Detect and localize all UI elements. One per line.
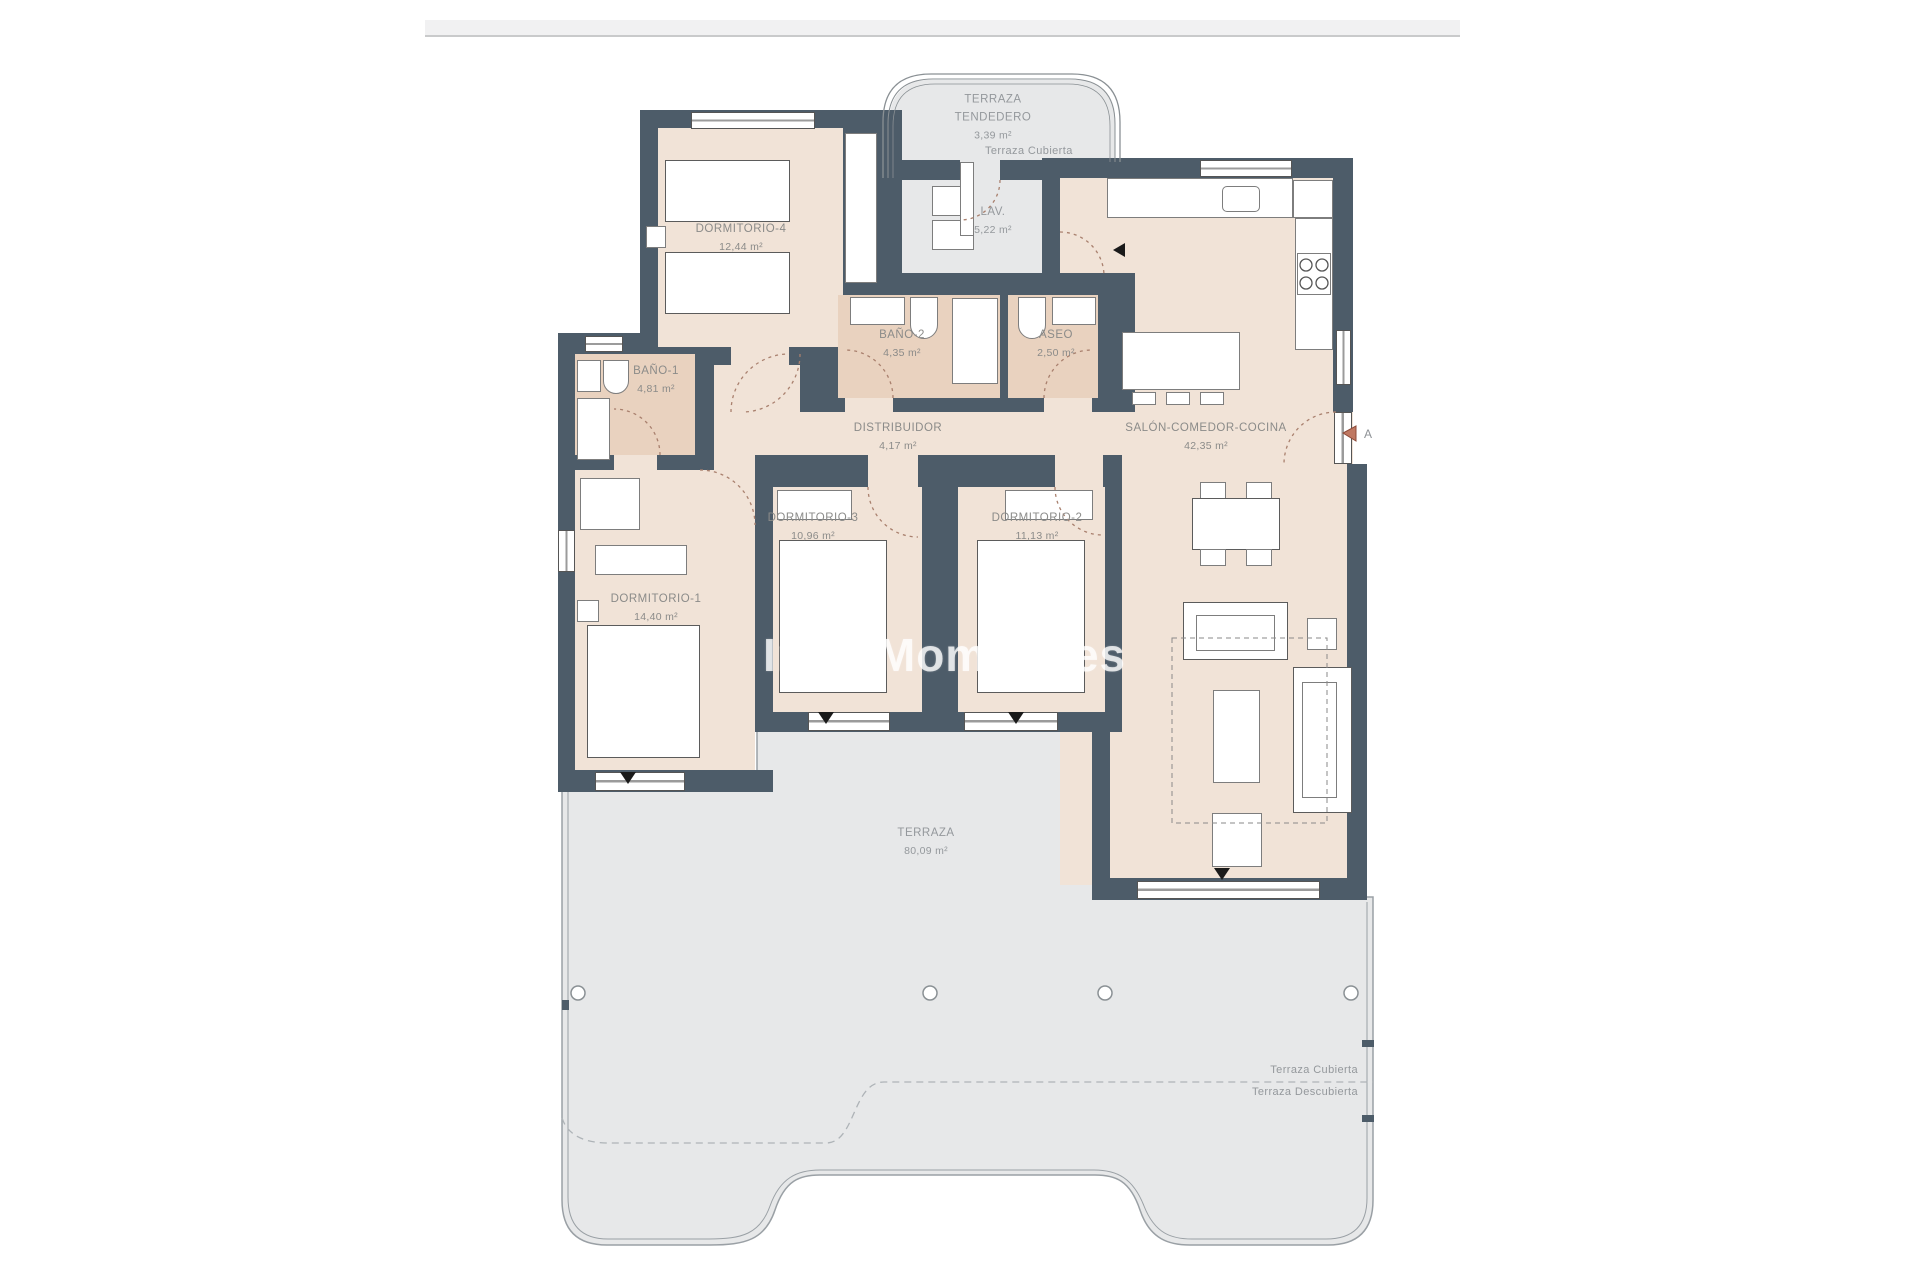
watermark: InmoMoment.es <box>763 628 1126 682</box>
room-label-lav: LAV.5,22 m² <box>974 204 1012 240</box>
label-terraza-cubierta-bottom: Terraza Cubierta <box>1252 1064 1358 1076</box>
page-top-divider <box>425 20 1460 37</box>
lav-door-leaf <box>960 162 974 236</box>
room-label-terraza: TERRAZA80,09 m² <box>897 825 954 861</box>
entrance-letter-label: A <box>1364 427 1372 441</box>
coffee-table <box>1213 690 1260 783</box>
kitchen-island <box>1122 332 1240 390</box>
island-stool-2 <box>1166 392 1190 405</box>
dorm1-wardrobe-2 <box>595 545 687 575</box>
kitchen-sink <box>1222 186 1260 212</box>
dorm1-side-window <box>558 530 575 572</box>
sofa-horizontal <box>1183 602 1288 660</box>
salon-east-window <box>1336 330 1351 385</box>
kitchen-counter <box>1107 178 1293 218</box>
chair-bottom-2 <box>1246 549 1272 566</box>
label-terraza-cubierta-top: Terraza Cubierta <box>985 145 1073 157</box>
island-stool-1 <box>1132 392 1156 405</box>
dorm4-bed-1 <box>665 160 790 222</box>
bano2-door-gap <box>845 398 893 412</box>
room-label-aseo: ASEO2,50 m² <box>1037 327 1075 363</box>
dorm1-window <box>595 772 685 791</box>
bano1-toilet <box>603 360 629 394</box>
dorm1-nightstand <box>577 600 599 622</box>
dorm1-wardrobe-1 <box>580 478 640 530</box>
tv-unit <box>1212 813 1262 867</box>
bano2-shower <box>952 298 998 384</box>
kitchen-cooktop <box>1297 253 1331 295</box>
room-label-bano1: BAÑO-14,81 m² <box>633 363 679 399</box>
dorm3-window <box>808 712 890 731</box>
room-label-salon: SALÓN-COMEDOR-COCINA42,35 m² <box>1125 420 1286 456</box>
dorm4-door-gap <box>731 347 789 365</box>
bano1-sink <box>577 360 601 392</box>
dorm2-door-gap <box>1055 455 1103 487</box>
side-table <box>1307 618 1337 650</box>
chair-top-2 <box>1246 482 1272 499</box>
aseo-sink <box>1052 297 1096 325</box>
room-label-bano2: BAÑO-24,35 m² <box>879 327 925 363</box>
dorm1-bed <box>587 625 700 758</box>
dorm4-bed-2 <box>665 252 790 314</box>
tend-lav-wall-b <box>1000 160 1042 180</box>
dorm4-window <box>691 112 815 129</box>
kitchen-window <box>1200 160 1292 177</box>
entrance-door-opening <box>1334 412 1352 464</box>
kitchen-fridge <box>1293 180 1333 218</box>
bano1-window <box>585 336 623 352</box>
room-label-dorm2: DORMITORIO-211,13 m² <box>992 510 1083 546</box>
bano1-shower <box>577 398 610 460</box>
island-stool-3 <box>1200 392 1224 405</box>
sofa-vertical <box>1293 667 1352 813</box>
floor-plan-canvas: TERRAZA TENDEDERO3,39 m² Terraza Cubiert… <box>0 0 1920 1280</box>
room-label-dorm4: DORMITORIO-412,44 m² <box>696 221 787 257</box>
room-label-distribuidor: DISTRIBUIDOR4,17 m² <box>854 420 942 456</box>
dorm3-door-gap <box>868 455 918 487</box>
chair-bottom-1 <box>1200 549 1226 566</box>
chair-top-1 <box>1200 482 1226 499</box>
tend-lav-wall-a <box>902 160 960 180</box>
dining-table <box>1192 498 1280 550</box>
room-label-dorm1: DORMITORIO-114,40 m² <box>611 591 702 627</box>
salon-west-wall-lower <box>1092 712 1110 900</box>
room-label-tendedero: TERRAZA TENDEDERO3,39 m² <box>938 91 1048 144</box>
dorm2-window <box>964 712 1058 731</box>
label-terraza-descubierta-bottom: Terraza Descubierta <box>1238 1086 1358 1098</box>
salon-window <box>1137 881 1320 899</box>
bano1-east-wall <box>695 333 714 470</box>
dorm4-wardrobe <box>845 133 877 283</box>
terrace-column-icon <box>571 986 1358 1000</box>
dorm4-nightstand <box>646 226 666 248</box>
bano1-door-gap <box>614 455 657 470</box>
room-label-dorm3: DORMITORIO-310,96 m² <box>768 510 859 546</box>
aseo-door-gap <box>1044 398 1092 412</box>
bano2-sink <box>850 297 905 325</box>
